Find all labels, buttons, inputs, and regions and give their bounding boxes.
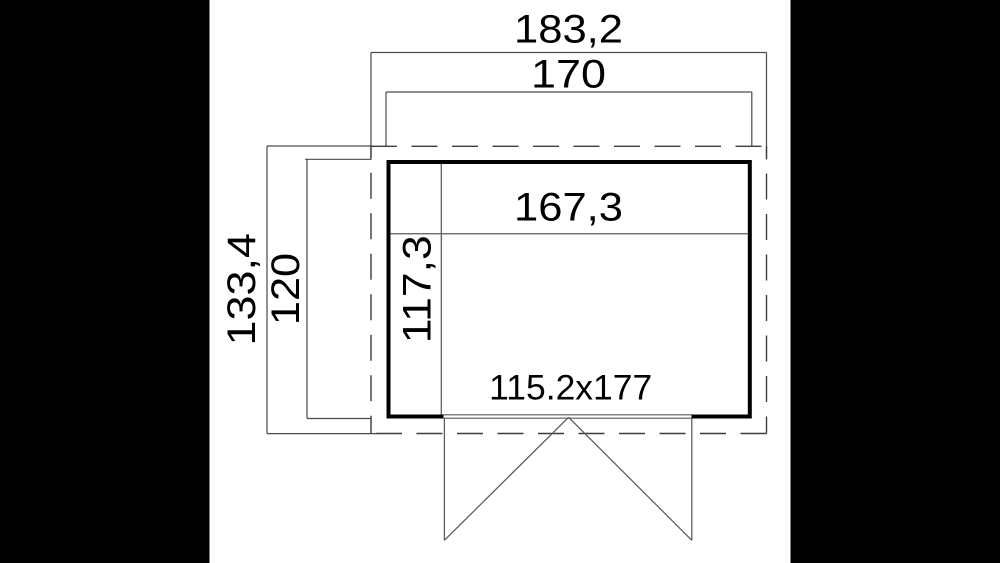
svg-text:117,3: 117,3 bbox=[396, 235, 440, 343]
svg-text:120: 120 bbox=[264, 253, 308, 325]
svg-text:115.2x177: 115.2x177 bbox=[489, 369, 652, 408]
svg-text:183,2: 183,2 bbox=[514, 8, 623, 52]
svg-text:167,3: 167,3 bbox=[514, 186, 623, 230]
svg-text:133,4: 133,4 bbox=[220, 233, 264, 346]
svg-text:170: 170 bbox=[531, 53, 606, 97]
